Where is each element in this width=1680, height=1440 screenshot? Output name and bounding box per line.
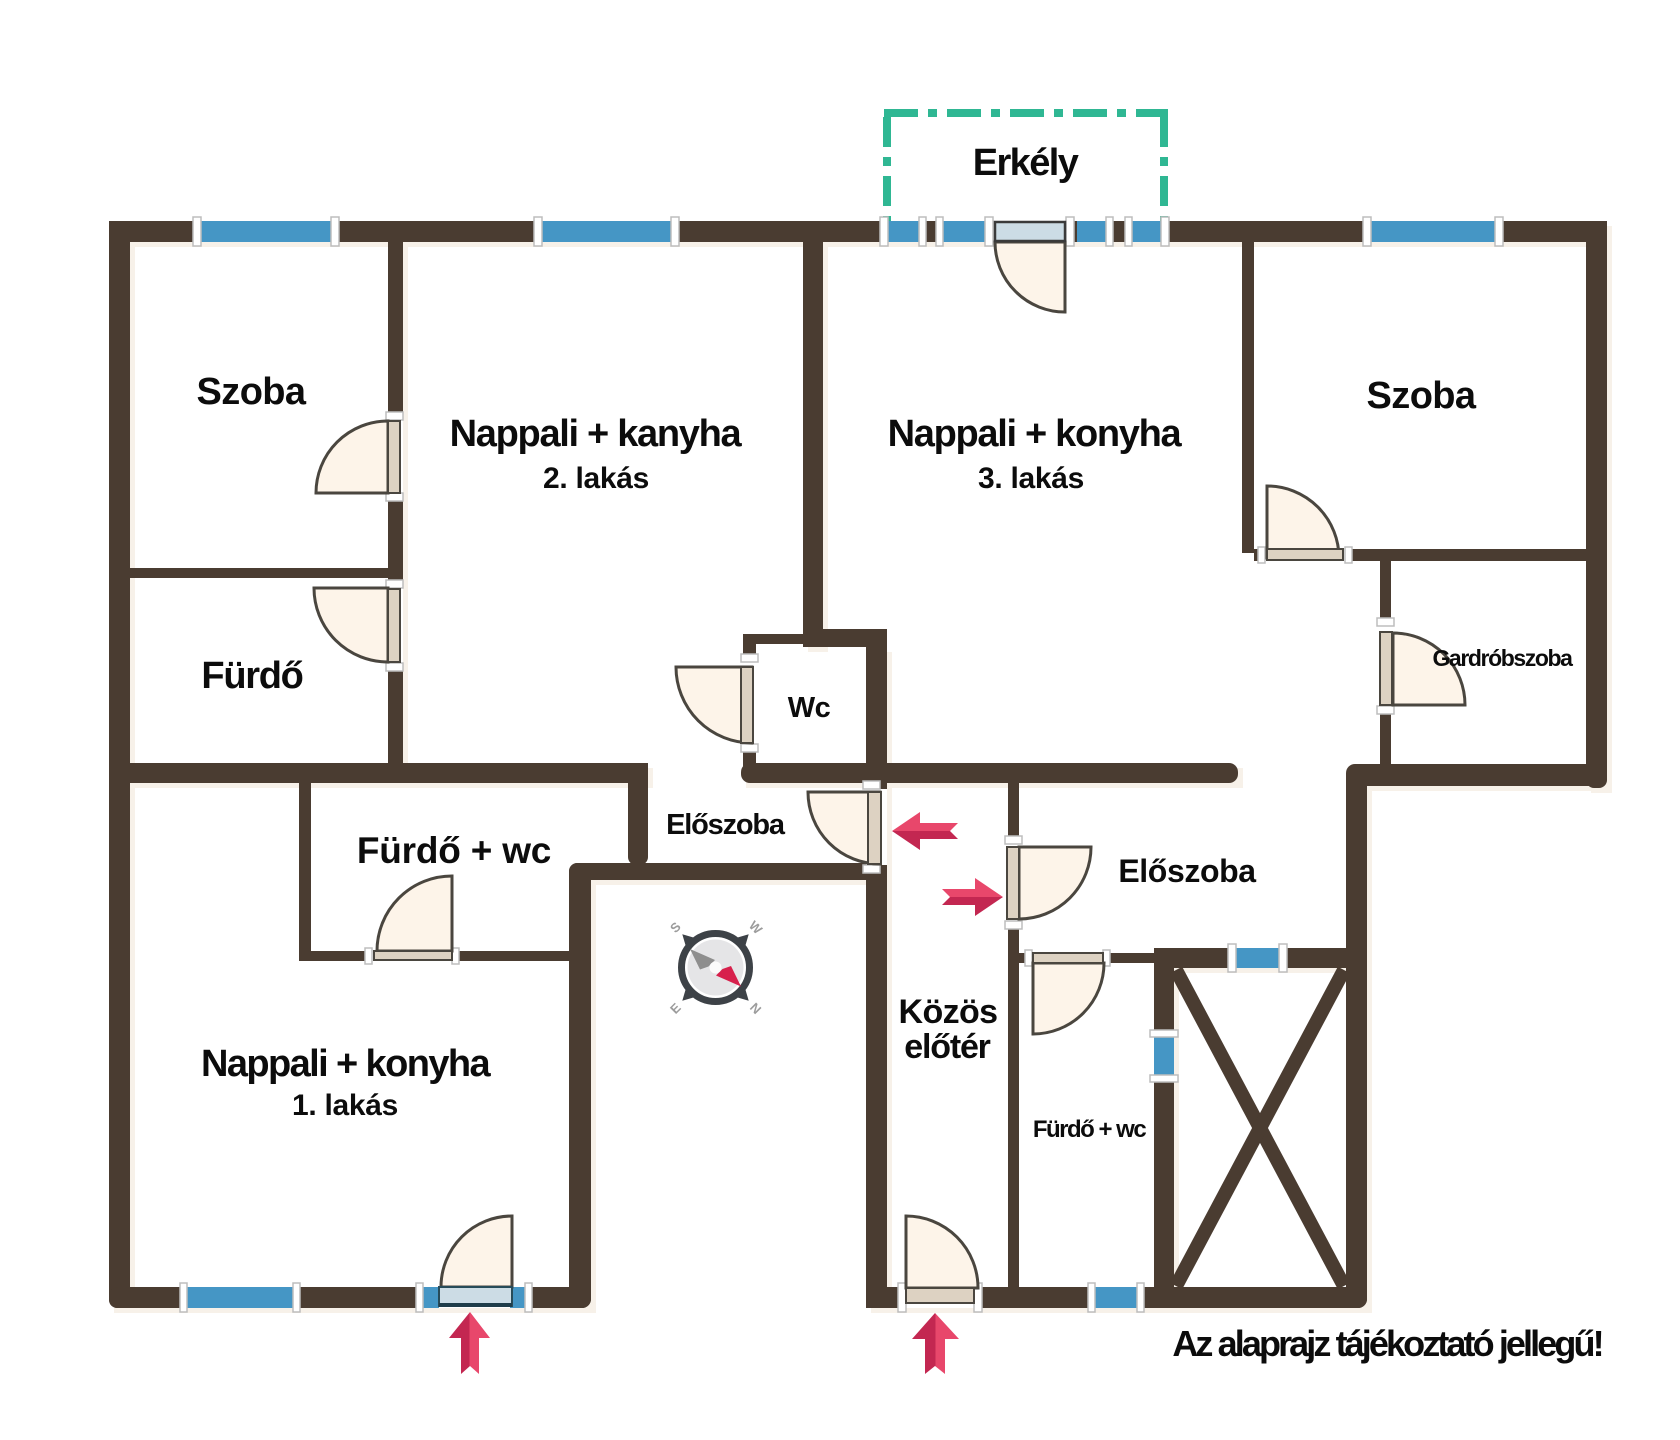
svg-text:Az alaprajz tájékoztató jelleg: Az alaprajz tájékoztató jellegű! — [1172, 1323, 1601, 1364]
svg-text:Nappali + konyha: Nappali + konyha — [201, 1043, 491, 1085]
svg-text:Erkély: Erkély — [973, 142, 1079, 184]
svg-text:2. lakás: 2. lakás — [543, 462, 649, 495]
svg-text:Fürdő + wc: Fürdő + wc — [357, 830, 551, 871]
svg-text:Szoba: Szoba — [197, 371, 307, 413]
svg-text:Közös: Közös — [898, 993, 997, 1031]
svg-text:Előszoba: Előszoba — [1118, 853, 1256, 889]
svg-text:Nappali + kanyha: Nappali + kanyha — [450, 413, 743, 455]
svg-text:Gardróbszoba: Gardróbszoba — [1432, 645, 1573, 671]
svg-text:3. lakás: 3. lakás — [978, 462, 1084, 495]
svg-text:Wc: Wc — [788, 692, 831, 724]
svg-text:Szoba: Szoba — [1367, 375, 1477, 417]
svg-text:Fürdő + wc: Fürdő + wc — [1033, 1116, 1147, 1143]
svg-text:Nappali + konyha: Nappali + konyha — [888, 413, 1183, 455]
svg-text:előtér: előtér — [904, 1028, 990, 1066]
svg-text:Fürdő: Fürdő — [201, 655, 302, 697]
svg-text:Előszoba: Előszoba — [666, 809, 786, 841]
svg-text:1. lakás: 1. lakás — [292, 1089, 398, 1122]
